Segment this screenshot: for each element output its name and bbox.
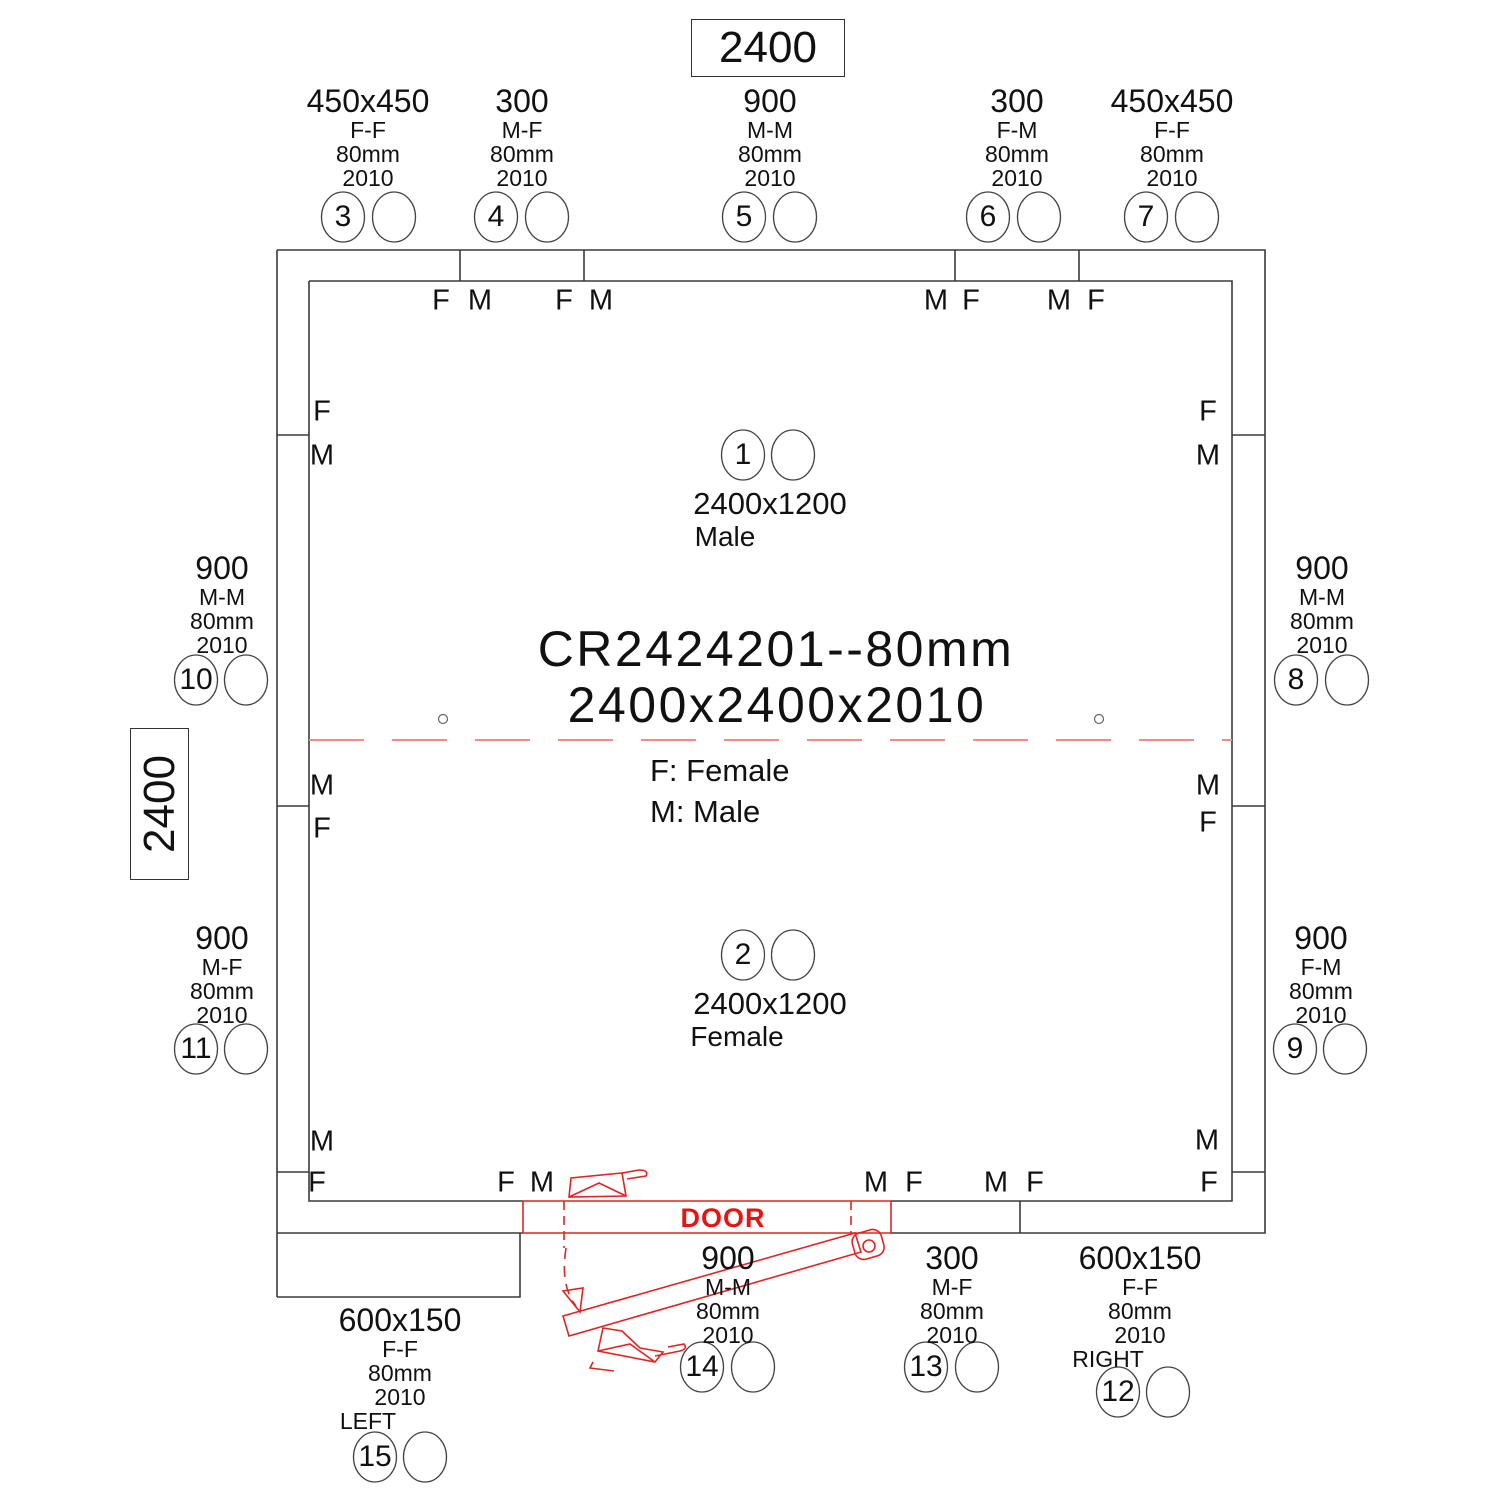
panel-label-4: 300M-F 80mm2010 — [490, 84, 554, 190]
drawing-title-size: 2400x2400x2010 — [568, 676, 987, 734]
panel-number-4: 4 — [488, 200, 505, 234]
panel-label-11: 900M-F 80mm2010 — [190, 921, 254, 1027]
dimension-top: 2400 — [691, 19, 845, 77]
panel-label-12: 600x150F-F 80mm2010 RIGHT — [1079, 1241, 1202, 1371]
panel-number-5: 5 — [736, 200, 753, 234]
legend-female: F: Female — [650, 753, 790, 789]
wall-letter: F — [905, 1167, 923, 1200]
wall-letter: F — [432, 285, 450, 318]
wall-letter: F — [1199, 396, 1217, 429]
door-swing-arc — [564, 1248, 576, 1306]
panel-label-6: 300F-M 80mm2010 — [985, 84, 1049, 190]
panel-number-8: 8 — [1288, 663, 1305, 697]
ceiling-fixing-point-icon — [439, 715, 448, 724]
dimension-left-value: 2400 — [135, 755, 185, 853]
door-label: DOOR — [681, 1203, 766, 1234]
wall-letter: F — [313, 396, 331, 429]
panel-number-13: 13 — [909, 1350, 942, 1384]
door-closer-icon — [569, 1170, 647, 1197]
wall-letter: M — [589, 285, 613, 318]
panel-number-14: 14 — [685, 1350, 718, 1384]
drawing-title-model: CR2424201--80mm — [538, 620, 1015, 678]
wall-letter: F — [962, 285, 980, 318]
right-wall-joints — [1232, 435, 1265, 1172]
panel-number-7: 7 — [1138, 200, 1155, 234]
panel-12-side: RIGHT — [1047, 1347, 1170, 1371]
panel-number-12: 12 — [1101, 1375, 1134, 1409]
wall-letter: F — [1087, 285, 1105, 318]
wall-letter: M — [310, 440, 334, 473]
panel-label-14: 900M-M 80mm2010 — [696, 1241, 760, 1347]
panel-number-6: 6 — [980, 200, 997, 234]
top-wall-joints — [460, 250, 1079, 281]
panel-number-1: 1 — [735, 438, 752, 472]
ceiling-panel-2-size: 2400x1200 — [693, 986, 846, 1022]
panel-label-5: 900M-M 80mm2010 — [738, 84, 802, 190]
panel-label-3: 450x450F-F 80mm2010 — [307, 84, 430, 190]
wall-letter: F — [1026, 1167, 1044, 1200]
panel-label-7: 450x450F-F 80mm2010 — [1111, 84, 1234, 190]
wall-letter: F — [1200, 1167, 1218, 1200]
wall-letter: F — [313, 813, 331, 846]
wall-letter: M — [530, 1167, 554, 1200]
ceiling-panel-2-gender: Female — [690, 1021, 783, 1053]
wall-letter: F — [497, 1167, 515, 1200]
panel-label-13: 300M-F 80mm2010 — [920, 1241, 984, 1347]
wall-letter: M — [1195, 1125, 1219, 1158]
wall-letter: M — [1196, 440, 1220, 473]
wall-letter: M — [864, 1167, 888, 1200]
legend-male: M: Male — [650, 794, 760, 830]
wall-letter: F — [555, 285, 573, 318]
corner-panel-left-outline — [277, 1233, 520, 1297]
wall-letter: F — [1199, 807, 1217, 840]
door-handle-icon — [590, 1328, 685, 1371]
wall-letter: M — [924, 285, 948, 318]
ceiling-fixing-point-icon — [1095, 715, 1104, 724]
wall-letter: M — [984, 1167, 1008, 1200]
ceiling-panel-1-gender: Male — [695, 521, 756, 553]
panel-number-15: 15 — [358, 1440, 391, 1474]
left-wall-joints — [277, 435, 309, 1172]
door-swing-arrow-icon — [563, 1288, 583, 1312]
wall-letter: F — [308, 1167, 326, 1200]
panel-number-3: 3 — [335, 200, 352, 234]
cold-room-panel-drawing: 2400 2400 CR2424201--80mm 2400x2400x2010… — [0, 0, 1500, 1500]
panel-label-15: 600x150F-F 80mm2010 LEFT — [339, 1303, 462, 1433]
ceiling-panel-1-size: 2400x1200 — [693, 486, 846, 522]
wall-letter: M — [1196, 770, 1220, 803]
panel-number-2: 2 — [735, 938, 752, 972]
panel-number-11: 11 — [180, 1032, 211, 1066]
dimension-left: 2400 — [130, 728, 189, 880]
panel-number-10: 10 — [179, 663, 212, 697]
panel-15-side: LEFT — [307, 1409, 430, 1433]
wall-letter: M — [468, 285, 492, 318]
wall-letter: M — [1047, 285, 1071, 318]
wall-letter: M — [310, 770, 334, 803]
panel-label-9: 900F-M 80mm2010 — [1289, 921, 1353, 1027]
door-hinge-pin-icon — [863, 1240, 875, 1252]
panel-label-10: 900M-M 80mm2010 — [190, 551, 254, 657]
wall-letter: M — [310, 1126, 334, 1159]
panel-label-8: 900M-M 80mm2010 — [1290, 551, 1354, 657]
panel-number-9: 9 — [1287, 1032, 1304, 1066]
dimension-top-value: 2400 — [719, 23, 817, 73]
